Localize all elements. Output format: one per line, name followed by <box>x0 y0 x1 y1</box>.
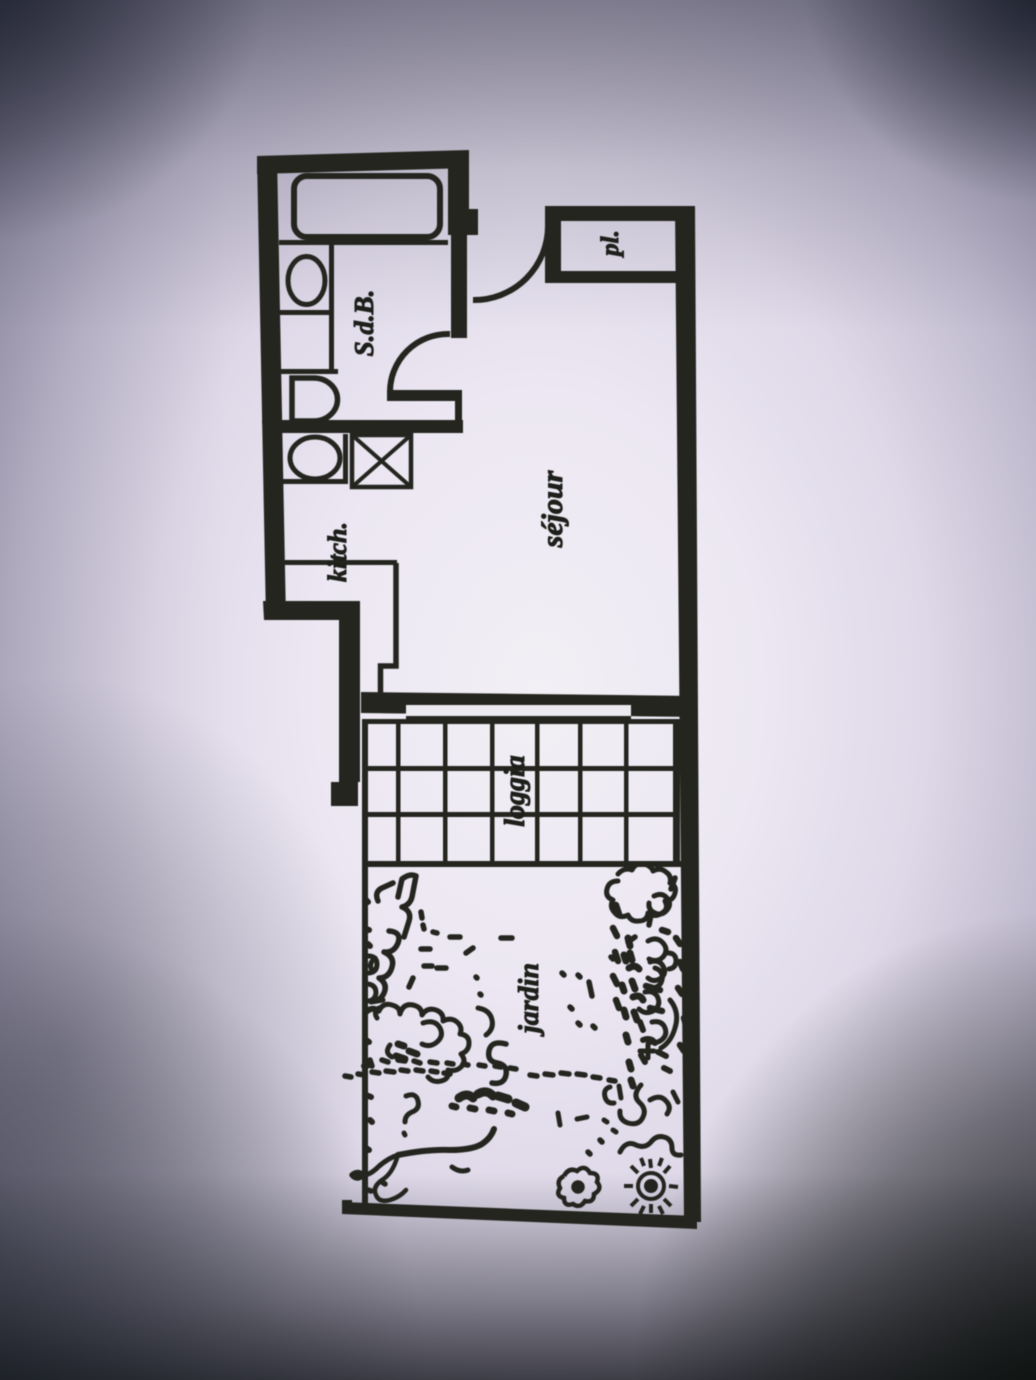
svg-text:kitch.: kitch. <box>323 522 352 582</box>
svg-text:séjour: séjour <box>536 470 569 548</box>
svg-text:S.d.B.: S.d.B. <box>349 290 379 357</box>
svg-text:jardin: jardin <box>514 963 545 1037</box>
svg-text:pl.: pl. <box>597 230 624 258</box>
svg-text:loggia: loggia <box>500 755 531 827</box>
